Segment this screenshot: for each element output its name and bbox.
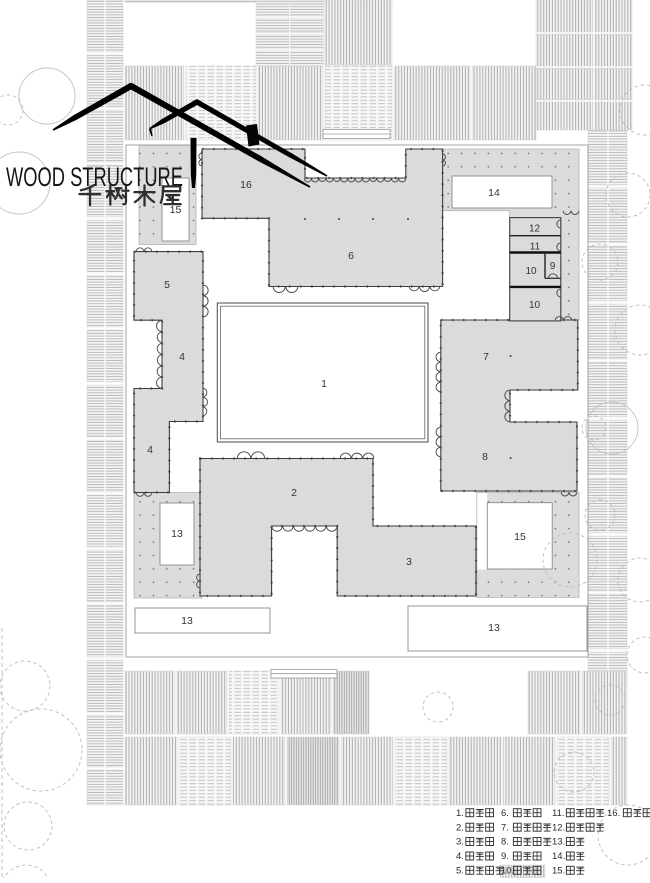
svg-text:1: 1 [321,378,327,390]
svg-text:13: 13 [171,528,183,540]
svg-text:15.: 15. [552,866,565,877]
svg-text:2: 2 [291,487,297,499]
svg-text:12.: 12. [552,822,565,833]
svg-text:3.: 3. [456,837,464,848]
svg-text:1.: 1. [456,808,464,819]
svg-text:7: 7 [483,351,489,363]
svg-text:4: 4 [179,351,185,363]
svg-text:WOOD STRUCTURE: WOOD STRUCTURE [6,162,183,192]
svg-text:8.: 8. [501,837,509,848]
svg-text:4.: 4. [456,851,464,862]
svg-text:16.: 16. [607,808,620,819]
svg-text:15: 15 [170,204,182,216]
svg-text:14: 14 [488,187,500,199]
svg-text:6.: 6. [501,808,509,819]
svg-text:9: 9 [550,261,556,272]
svg-text:10.: 10. [501,866,514,877]
svg-text:12: 12 [529,224,541,235]
svg-text:2.: 2. [456,822,464,833]
svg-text:7.: 7. [501,822,509,833]
svg-text:3: 3 [406,556,412,568]
svg-text:9.: 9. [501,851,509,862]
svg-text:5.: 5. [456,866,464,877]
svg-text:15: 15 [514,531,526,543]
svg-text:10: 10 [525,266,537,277]
svg-text:8: 8 [482,451,488,463]
svg-text:6: 6 [348,250,354,262]
svg-text:4: 4 [147,444,153,456]
svg-text:13: 13 [488,622,500,634]
svg-text:11.: 11. [552,808,565,819]
svg-text:13.: 13. [552,837,565,848]
svg-text:16: 16 [240,179,252,191]
svg-text:14.: 14. [552,851,565,862]
svg-text:11: 11 [530,242,541,253]
svg-text:13: 13 [181,615,193,627]
svg-text:10: 10 [529,300,541,311]
svg-text:5: 5 [164,279,170,291]
